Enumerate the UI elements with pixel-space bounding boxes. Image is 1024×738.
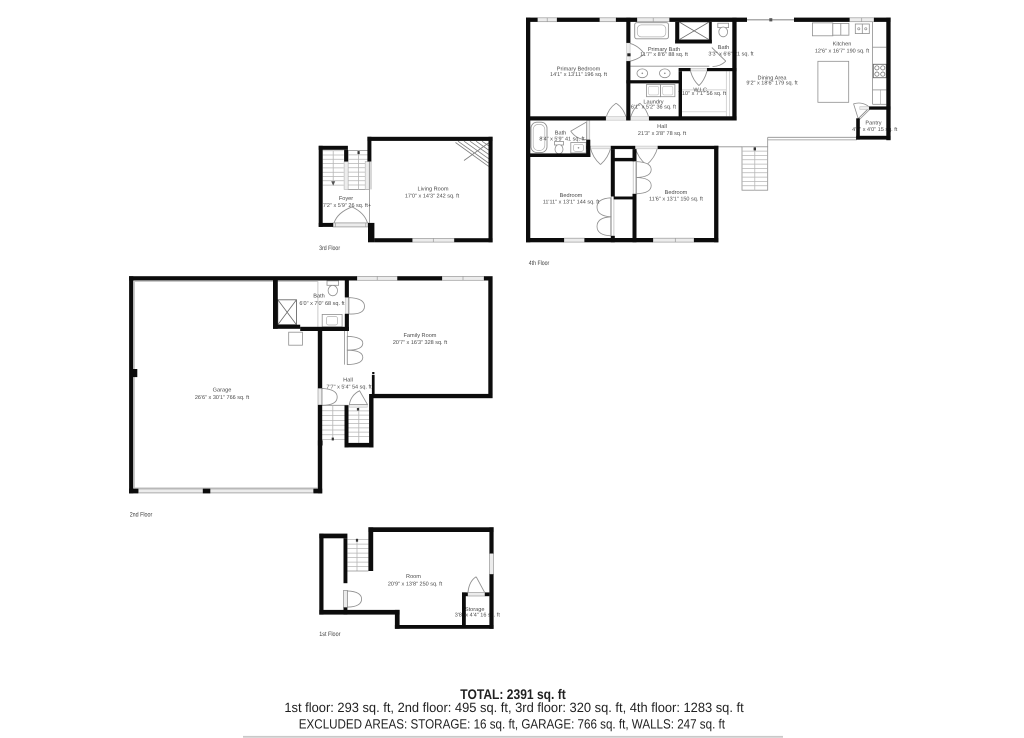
svg-text:20'9" x 13'8" 250 sq. ft: 20'9" x 13'8" 250 sq. ft: [388, 582, 443, 588]
svg-text:3'3" x 6'6" 21 sq. ft: 3'3" x 6'6" 21 sq. ft: [708, 51, 754, 57]
svg-text:Family Room: Family Room: [404, 332, 437, 339]
svg-text:Foyer: Foyer: [339, 196, 353, 202]
svg-text:7'7" x 5'4" 54 sq. ft: 7'7" x 5'4" 54 sq. ft: [326, 385, 372, 391]
svg-text:Kitchen: Kitchen: [833, 41, 852, 48]
svg-text:Hall: Hall: [343, 377, 353, 384]
svg-text:6'1" x 5'2" 36 sq. ft: 6'1" x 5'2" 36 sq. ft: [631, 104, 677, 110]
svg-text:Living Room: Living Room: [417, 185, 448, 192]
svg-text:Pantry: Pantry: [865, 121, 881, 127]
svg-text:14'1" x 13'11" 196 sq. ft: 14'1" x 13'11" 196 sq. ft: [550, 72, 607, 78]
svg-text:Bath: Bath: [555, 129, 567, 136]
svg-text:Room: Room: [406, 574, 421, 580]
svg-text:Bedroom: Bedroom: [665, 189, 688, 196]
svg-text:EXCLUDED AREAS: STORAGE: 16 sq: EXCLUDED AREAS: STORAGE: 16 sq. ft, GARA…: [299, 717, 725, 732]
svg-text:1st Floor: 1st Floor: [319, 631, 341, 638]
svg-text:Garage: Garage: [213, 388, 232, 394]
svg-text:7'2" x 5'9" 26 sq. ft+: 7'2" x 5'9" 26 sq. ft+: [323, 203, 371, 209]
svg-text:4th Floor: 4th Floor: [529, 260, 550, 267]
svg-text:9'2" x 18'6" 179 sq. ft: 9'2" x 18'6" 179 sq. ft: [746, 81, 798, 87]
svg-text:2nd Floor: 2nd Floor: [130, 512, 153, 519]
svg-text:7'10" x 7'1" 56 sq. ft: 7'10" x 7'1" 56 sq. ft: [678, 91, 727, 97]
svg-text:1st floor: 293 sq. ft, 2nd flo: 1st floor: 293 sq. ft, 2nd floor: 495 sq…: [284, 700, 744, 715]
svg-text:Hall: Hall: [657, 123, 667, 130]
svg-text:11'6" x 13'1" 150 sq. ft: 11'6" x 13'1" 150 sq. ft: [649, 197, 703, 203]
svg-text:11'11" x 13'1" 144 sq. ft: 11'11" x 13'1" 144 sq. ft: [543, 200, 600, 206]
svg-text:17'0" x 14'3" 242 sq. ft: 17'0" x 14'3" 242 sq. ft: [405, 193, 460, 199]
svg-text:20'7" x 16'3" 328 sq. ft: 20'7" x 16'3" 328 sq. ft: [393, 340, 448, 346]
svg-text:6'0" x 7'0" 68 sq. ft: 6'0" x 7'0" 68 sq. ft: [299, 301, 345, 307]
svg-text:Bath: Bath: [313, 293, 325, 300]
svg-text:Bath: Bath: [718, 44, 730, 51]
svg-text:26'6" x 30'1" 766 sq. ft: 26'6" x 30'1" 766 sq. ft: [195, 395, 250, 401]
svg-text:11'7" x 8'6" 88 sq. ft: 11'7" x 8'6" 88 sq. ft: [640, 52, 688, 58]
svg-text:Bedroom: Bedroom: [560, 192, 583, 199]
svg-text:8'4" x 5'9" 41 sq. ft: 8'4" x 5'9" 41 sq. ft: [539, 137, 585, 143]
svg-text:3rd Floor: 3rd Floor: [319, 245, 341, 252]
svg-text:21'3" x 3'8" 78 sq. ft: 21'3" x 3'8" 78 sq. ft: [638, 131, 687, 137]
svg-text:12'6" x 16'7" 190 sq. ft: 12'6" x 16'7" 190 sq. ft: [815, 48, 870, 54]
